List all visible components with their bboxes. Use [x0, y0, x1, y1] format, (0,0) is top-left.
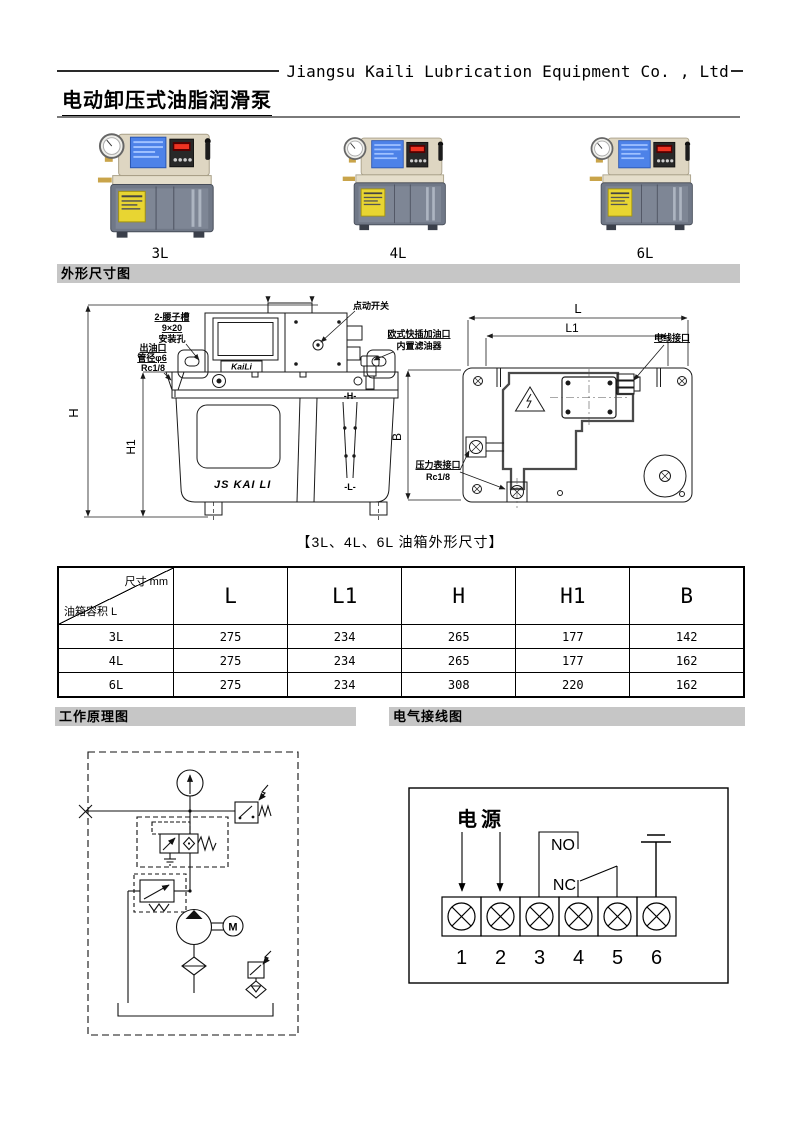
terminal-number-2: 2 — [495, 947, 506, 969]
cell-value: 162 — [630, 673, 744, 698]
product-photo-4l — [340, 131, 456, 231]
section-banner-outline: 外形尺寸图 — [57, 264, 740, 283]
slot-label-line2: 9×20 — [162, 323, 182, 333]
table-header-row: 尺寸 mm 油箱容积 L L L1 H H1 B — [58, 567, 744, 625]
working-principle-diagram: M — [75, 748, 305, 1040]
row-model: 6L — [58, 673, 174, 698]
cell-value: 142 — [630, 625, 744, 649]
tank-brand-text: JS KAI LI — [214, 479, 271, 491]
bypass-valve-assembly — [128, 874, 192, 1003]
terminal-numbers: 1 2 3 4 5 6 — [456, 947, 662, 969]
header-rule-right — [731, 70, 743, 72]
cell-value: 177 — [516, 649, 630, 673]
jog-switch-label: 点动开关 — [353, 300, 389, 311]
col-header-b: B — [630, 567, 744, 625]
level-low-mark: -L- — [344, 482, 356, 492]
col-header-h1: H1 — [516, 567, 630, 625]
cell-value: 220 — [516, 673, 630, 698]
slot-label-line1: 2-腰子槽 — [154, 311, 189, 322]
pressure-switch-symbol — [235, 785, 271, 823]
fill-port-label-line2: 内置滤油器 — [396, 340, 442, 351]
cell-value: 275 — [174, 625, 288, 649]
corner-bottom-label: 油箱容积 L — [64, 603, 117, 619]
wire-port-label: 电线接口 — [654, 332, 690, 343]
terminal-number-1: 1 — [456, 947, 467, 969]
level-high-mark: -H- — [344, 391, 357, 401]
outline-dimension-drawing: H H1 — [60, 292, 760, 544]
drawing-caption: 【3L、4L、6L 油箱外形尺寸】 — [240, 532, 560, 552]
brand-plate-text: KaiLi — [231, 362, 252, 372]
level-switch-symbol — [246, 951, 271, 998]
cell-value: 234 — [288, 625, 402, 649]
nc-label: NC — [553, 877, 576, 894]
header-rule-left — [57, 70, 279, 72]
corner-top-label: 尺寸 mm — [125, 573, 168, 589]
product-photo-3l — [95, 126, 225, 239]
tank-symbol — [118, 1003, 273, 1016]
outlet-label-line1: 出油口 — [139, 342, 166, 353]
table-row-3l: 3L 275 234 265 177 142 — [58, 625, 744, 649]
cell-value: 275 — [174, 649, 288, 673]
pressure-gauge-symbol — [177, 770, 203, 811]
terminal-number-6: 6 — [651, 947, 662, 969]
product-label-3l: 3L — [95, 246, 225, 262]
wiring-diagram: 电源 NO NC — [402, 784, 732, 988]
cell-value: 162 — [630, 649, 744, 673]
product-label-4l: 4L — [340, 246, 456, 262]
row-model: 3L — [58, 625, 174, 649]
title-divider — [57, 116, 740, 118]
gauge-port-label-line1: 压力表接口 — [415, 459, 460, 470]
terminal-number-3: 3 — [534, 947, 545, 969]
table-row-6l: 6L 275 234 308 220 162 — [58, 673, 744, 698]
dim-l-label: L — [574, 301, 581, 316]
table-row-4l: 4L 275 234 265 177 162 — [58, 649, 744, 673]
datasheet-page: Jiangsu Kaili Lubrication Equipment Co. … — [0, 0, 800, 1131]
relief-valve-assembly — [137, 811, 228, 891]
cell-value: 265 — [402, 649, 516, 673]
power-label: 电源 — [457, 808, 505, 831]
col-header-l1: L1 — [288, 567, 402, 625]
table-corner-cell: 尺寸 mm 油箱容积 L — [58, 567, 174, 625]
outlet-label-line3: Rc1/8 — [141, 363, 165, 373]
front-view-pump-body — [166, 303, 398, 523]
dim-h-label: H — [66, 408, 81, 417]
section-banner-principle: 工作原理图 — [55, 707, 356, 726]
terminal-number-5: 5 — [612, 947, 623, 969]
page-header: Jiangsu Kaili Lubrication Equipment Co. … — [57, 58, 743, 84]
col-header-h: H — [402, 567, 516, 625]
outlet-label-line2: 管径φ6 — [137, 352, 166, 363]
col-header-l: L — [174, 567, 288, 625]
fill-port-label-line1: 欧式快插加油口 — [387, 328, 450, 339]
page-title: 电动卸压式油脂润滑泵 — [62, 84, 272, 117]
terminal-number-4: 4 — [573, 947, 584, 969]
motor-label: M — [228, 922, 237, 934]
product-photo-6l — [586, 131, 704, 231]
dim-l1-label: L1 — [565, 321, 579, 335]
row-model: 4L — [58, 649, 174, 673]
enclosure-boundary — [88, 752, 298, 1035]
gauge-port-label-line2: Rc1/8 — [426, 472, 450, 482]
terminal-blocks — [442, 897, 676, 936]
cell-value: 265 — [402, 625, 516, 649]
cell-value: 308 — [402, 673, 516, 698]
cell-value: 275 — [174, 673, 288, 698]
cell-value: 234 — [288, 673, 402, 698]
dim-h1-label: H1 — [124, 439, 138, 455]
top-view-plate — [463, 368, 692, 508]
dimension-table: 尺寸 mm 油箱容积 L L L1 H H1 B 3L 275 234 265 … — [57, 566, 745, 698]
cell-value: 234 — [288, 649, 402, 673]
product-label-6l: 6L — [586, 246, 704, 262]
ground-symbol — [641, 835, 671, 897]
cell-value: 177 — [516, 625, 630, 649]
section-banner-wiring: 电气接线图 — [389, 707, 745, 726]
filter-symbol — [182, 957, 206, 993]
dim-b-label: B — [390, 433, 404, 441]
no-label: NO — [551, 837, 575, 854]
company-name: Jiangsu Kaili Lubrication Equipment Co. … — [279, 62, 731, 81]
